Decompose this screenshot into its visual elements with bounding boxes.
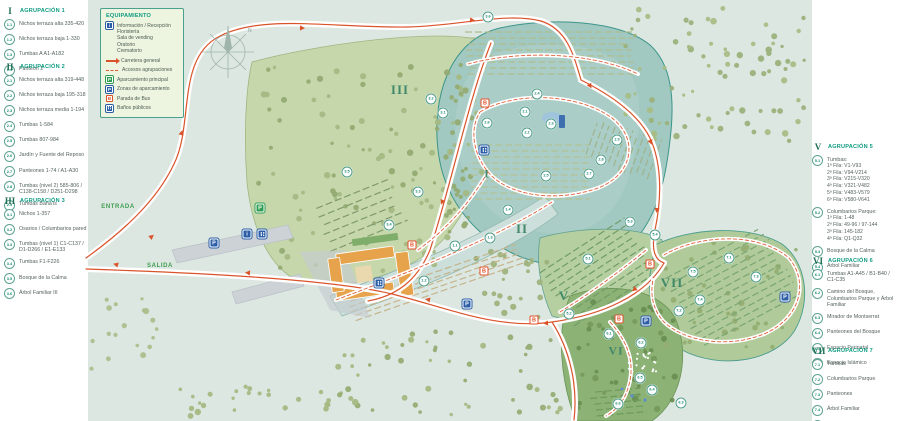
- legend-item-label: Mirador de Montserrat: [827, 313, 879, 321]
- legend-item-label: Panteones 1-74 / A1-A30: [19, 166, 78, 174]
- legend-item-6.4: 6.4Panteones del Bosque: [812, 328, 898, 339]
- map-marker-6.5: 6.5: [635, 373, 646, 384]
- legend-item-code: 2.5: [4, 136, 15, 147]
- section-title: AGRUPACIÓN 1: [20, 8, 65, 14]
- legend-item-code: 3.3: [4, 239, 15, 250]
- legend-item-label: Nichos terraza media 1-194: [19, 105, 84, 113]
- legend-item-3.5: 3.5Bosque de la Calma: [4, 273, 88, 284]
- wc-icon: [375, 279, 384, 288]
- map-marker-7.4: 7.4: [695, 295, 706, 306]
- legend-item-code: 5.2: [812, 207, 823, 218]
- legend-item-label: Nichos 1-357: [19, 209, 50, 217]
- legend-item-code: 5.1: [812, 155, 823, 166]
- legend-section-agrupacion-II: IIAGRUPACIÓN 22.1Nichos terraza alta 319…: [4, 62, 88, 215]
- fountain-icon: [559, 115, 565, 128]
- legend-item-5.2: 5.2Columbarios Parque:1ª Fila: 1-482ª Fi…: [812, 207, 898, 242]
- legend-item-2.3: 2.3Nichos terraza media 1-194: [4, 105, 88, 116]
- legend-item-3.4: 3.4Tumbas F1-F226: [4, 258, 88, 269]
- equipment-item: iInformación / RecepciónFloristeríaSala …: [106, 22, 179, 54]
- equipment-item-label: Información / RecepciónFloristeríaSala d…: [117, 22, 171, 54]
- legend-item-label: Nichos terraza alta 335-420: [19, 19, 84, 27]
- map-marker-2.1: 2.1: [520, 107, 531, 118]
- map-area-numeral-V: V: [559, 288, 569, 304]
- map-marker-1.3: 1.3: [485, 233, 496, 244]
- legend-item-2.1: 2.1Nichos terraza alta 319-448: [4, 75, 88, 86]
- legend-item-code: 3.2: [4, 224, 15, 235]
- equipment-legend: EQUIPAMIENTO iInformación / RecepciónFlo…: [100, 8, 184, 118]
- legend-item-7.4: 7.4Árbol Familiar: [812, 405, 898, 416]
- legend-item-1.3: 1.3Tumbas A A1-A182: [4, 49, 88, 60]
- equipment-item: PAparcamiento principal: [106, 76, 179, 83]
- map-marker-2.4: 2.4: [532, 89, 543, 100]
- wc-icon: [480, 146, 489, 155]
- map-area-numeral-VII: VII: [661, 275, 684, 291]
- legend-item-label: Tumbas:1ª Fila: V1-V932ª Fila: V94-V2143…: [827, 155, 870, 203]
- bus-stop-icon: B: [408, 241, 417, 250]
- legend-item-label: Columbarios Parque: [827, 374, 875, 382]
- equipment-item: Baños públicos: [106, 105, 179, 112]
- wc-icon: [106, 105, 113, 112]
- map-marker-2.6: 2.6: [482, 118, 493, 129]
- legend-item-code: 2.4: [4, 121, 15, 132]
- map-marker-6.4: 6.4: [647, 385, 658, 396]
- legend-item-code: 6.4: [812, 328, 823, 339]
- bus-stop-icon: B: [481, 99, 490, 108]
- legend-item-label: Columbarios Parque:1ª Fila: 1-482ª Fila:…: [827, 207, 877, 242]
- bus-stop-icon: B: [615, 315, 624, 324]
- equipment-legend-title: EQUIPAMIENTO: [106, 13, 179, 19]
- equipment-item-label: Zonas de aparcamiento: [117, 86, 170, 93]
- section-numeral: VI: [812, 256, 824, 266]
- bus-stop-icon: B: [480, 267, 489, 276]
- legend-item-3.1: 3.1Nichos 1-357: [4, 209, 88, 220]
- legend-item-2.5: 2.5Tumbas 807-984: [4, 136, 88, 147]
- legend-item-sublines: 1ª Fila: V1-V932ª Fila: V94-V2143ª Fila:…: [827, 163, 870, 203]
- map-area-numeral-III: III: [391, 82, 409, 98]
- legend-item-label: Bosque de la Calma: [827, 246, 875, 254]
- map-marker-2.2: 2.2: [522, 128, 533, 139]
- legend-item-6.2: 6.2Camino del Bosque, Columbarios Parque…: [812, 288, 898, 309]
- legend-item-code: 2.2: [4, 90, 15, 101]
- equipment-item-label: Baños públicos: [117, 105, 151, 112]
- legend-item-label: Tumbas (nivel 2) 585-806 / C138-C158 / D…: [19, 181, 88, 195]
- legend-item-1.2: 1.2Nichos terraza baja 1-330: [4, 34, 88, 45]
- section-numeral: II: [4, 62, 16, 72]
- legend-item-label: Árbol Familiar III: [19, 288, 58, 296]
- map-marker-5.3: 5.3: [625, 217, 636, 228]
- legend-item-6.3: 6.3Mirador de Montserrat: [812, 313, 898, 324]
- map-marker-7.2: 7.2: [674, 306, 685, 317]
- legend-item-code: 2.3: [4, 105, 15, 116]
- map-marker-2.5: 2.5: [541, 171, 552, 182]
- legend-item-code: 7.3: [812, 389, 823, 400]
- compass-rose-icon: N: [202, 26, 254, 78]
- map-marker-6.2: 6.2: [636, 338, 647, 349]
- section-numeral: VII: [812, 346, 824, 356]
- legend-item-code: 6.3: [812, 313, 823, 324]
- access-road-icon: [106, 70, 118, 71]
- legend-item-label: Tumbas A A1-A182: [19, 49, 64, 57]
- equipment-item-label: Carretera general: [121, 57, 160, 64]
- legend-item-2.2: 2.2Nichos terraza baja 195-318: [4, 90, 88, 101]
- map-marker-3.2: 3.2: [426, 94, 437, 105]
- legend-item-code: 3.5: [4, 273, 15, 284]
- map-marker-6.1: 6.1: [604, 329, 615, 340]
- main-road-icon: [106, 60, 117, 62]
- map-marker-5.4: 5.4: [650, 230, 661, 241]
- section-title: AGRUPACIÓN 6: [828, 258, 873, 264]
- map-marker-3.4: 3.4: [384, 220, 395, 231]
- equipment-item-label: Parada de Bus: [117, 95, 150, 102]
- legend-item-label: Nichos terraza alta 319-448: [19, 75, 84, 83]
- map-marker-3.3: 3.3: [413, 187, 424, 198]
- legend-item-code: 2.6: [4, 151, 15, 162]
- map-marker-6.6: 6.6: [613, 399, 624, 410]
- map-marker-3.6: 3.6: [483, 12, 494, 23]
- legend-item-code: 3.4: [4, 258, 15, 269]
- legend-item-label: Nichos terraza baja 195-318: [19, 90, 86, 98]
- legend-item-label: Panteones del Bosque: [827, 328, 880, 336]
- equipment-item: Accesos agrupaciones: [106, 67, 179, 74]
- map-marker-2.3: 2.3: [546, 119, 557, 130]
- parking-zone-icon: P: [106, 86, 113, 93]
- map-marker-7.3: 7.3: [751, 272, 762, 283]
- map-area-numeral-VI: VI: [608, 344, 623, 359]
- road-label-entrada: ENTRADA: [101, 204, 135, 210]
- legend-item-label: Bosque de la Calma: [19, 273, 67, 281]
- legend-item-code: 1.3: [4, 49, 15, 60]
- legend-item-6.1: 6.1Tumbas A1-A45 / B1-B40 / C1-C35: [812, 269, 898, 283]
- map-marker-1.1: 1.1: [450, 241, 461, 252]
- equipment-item: BParada de Bus: [106, 95, 179, 102]
- legend-item-1.1: 1.1Nichos terraza alta 335-420: [4, 19, 88, 30]
- section-title: AGRUPACIÓN 3: [20, 198, 65, 204]
- bus-stop-icon: B: [106, 95, 113, 102]
- map-marker-6.3: 6.3: [676, 398, 687, 409]
- legend-item-2.4: 2.4Tumbas 1-584: [4, 121, 88, 132]
- legend-item-label: Tumbas 807-984: [19, 136, 59, 144]
- info-icon: i: [243, 230, 252, 239]
- map-marker-7.1: 7.1: [724, 253, 735, 264]
- map-area-numeral-II: II: [516, 221, 528, 237]
- section-title: AGRUPACIÓN 2: [20, 64, 65, 70]
- cemetery-park-map: N EQUIPAMIENTO iInformación / RecepciónF…: [0, 0, 900, 421]
- legend-item-code: 2.8: [4, 181, 15, 192]
- map-marker-5.1: 5.1: [583, 254, 594, 265]
- map-marker-1.2: 1.2: [419, 276, 430, 287]
- parking-main-icon: P: [106, 76, 113, 83]
- legend-item-2.8: 2.8Tumbas (nivel 2) 585-806 / C138-C158 …: [4, 181, 88, 195]
- legend-item-3.3: 3.3Tumbas (nivel 1) C1-C137 / D1-D266 / …: [4, 239, 88, 253]
- equipment-item: Carretera general: [106, 57, 179, 64]
- parking-main-icon: P: [256, 204, 265, 213]
- map-marker-7.5: 7.5: [688, 267, 699, 278]
- legend-item-code: 7.2: [812, 374, 823, 385]
- legend-item-code: 3.6: [4, 288, 15, 299]
- legend-item-code: 2.1: [4, 75, 15, 86]
- legend-item-label: Camino del Bosque, Columbarios Parque y …: [827, 288, 898, 309]
- legend-item-code: 6.2: [812, 288, 823, 299]
- legend-item-label: Tumbas (nivel 1) C1-C137 / D1-D266 / E1-…: [19, 239, 88, 253]
- legend-item-7.3: 7.3Panteones: [812, 389, 898, 400]
- legend-item-sublines: 1ª Fila: 1-482ª Fila: 49-96 / 97-1443ª F…: [827, 215, 877, 242]
- map-marker-3.1: 3.1: [438, 108, 449, 119]
- legend-item-label: Osarios / Columbarios pared: [19, 224, 86, 232]
- legend-item-label: Tumbas 1-584: [19, 121, 53, 129]
- legend-item-label: Tumbas A1-A45 / B1-B40 / C1-C35: [827, 269, 898, 283]
- legend-item-2.6: 2.6Jardín y Fuente del Reposo: [4, 151, 88, 162]
- map-marker-1.4: 1.4: [503, 205, 514, 216]
- legend-item-label: Panteones: [827, 389, 852, 397]
- legend-item-label: Jardín y Fuente del Reposo: [19, 151, 84, 159]
- legend-item-7.2: 7.2Columbarios Parque: [812, 374, 898, 385]
- equipment-item: PZonas de aparcamiento: [106, 86, 179, 93]
- legend-section-agrupacion-III: IIIAGRUPACIÓN 33.1Nichos 1-3573.2Osarios…: [4, 196, 88, 304]
- legend-item-label: Tumbas: [827, 359, 846, 367]
- equipment-item-label: Aparcamiento principal: [117, 76, 168, 83]
- bus-stop-icon: B: [530, 316, 539, 325]
- map-marker-3.5: 3.5: [342, 167, 353, 178]
- info-icon: i: [106, 22, 113, 29]
- parking-zone-icon: P: [781, 293, 790, 302]
- road-label-salida: SALIDA: [147, 263, 173, 269]
- parking-zone-icon: P: [642, 317, 651, 326]
- legend-item-7.1: 7.1Tumbas: [812, 359, 898, 370]
- map-marker-2.9: 2.9: [612, 135, 623, 146]
- section-numeral: V: [812, 142, 824, 152]
- section-title: AGRUPACIÓN 7: [828, 348, 873, 354]
- map-marker-2.8: 2.8: [596, 155, 607, 166]
- legend-item-code: 7.4: [812, 405, 823, 416]
- legend-item-code: 6.1: [812, 269, 823, 280]
- map-marker-2.7: 2.7: [584, 169, 595, 180]
- legend-item-label: Nichos terraza baja 1-330: [19, 34, 80, 42]
- bus-stop-icon: B: [646, 260, 655, 269]
- legend-item-code: 2.7: [4, 166, 15, 177]
- legend-item-3.6: 3.6Árbol Familiar III: [4, 288, 88, 299]
- section-numeral: III: [4, 196, 16, 206]
- legend-item-3.2: 3.2Osarios / Columbarios pared: [4, 224, 88, 235]
- parking-zone-icon: P: [463, 300, 472, 309]
- equipment-item-label: Accesos agrupaciones: [122, 67, 172, 74]
- legend-item-code: 7.1: [812, 359, 823, 370]
- legend-item-2.7: 2.7Panteones 1-74 / A1-A30: [4, 166, 88, 177]
- legend-left: IAGRUPACIÓN 11.1Nichos terraza alta 335-…: [4, 0, 88, 421]
- legend-item-code: 1.2: [4, 34, 15, 45]
- wc-icon: [258, 230, 267, 239]
- parking-zone-icon: P: [210, 239, 219, 248]
- legend-item-label: Tumbas F1-F226: [19, 258, 59, 266]
- zone-agrupacion2-terraces: [437, 22, 672, 266]
- section-numeral: I: [4, 6, 16, 16]
- legend-item-code: 1.1: [4, 19, 15, 30]
- map-marker-5.2: 5.2: [564, 309, 575, 320]
- map-area-numeral-I: I: [484, 167, 490, 182]
- legend-item-code: 3.1: [4, 209, 15, 220]
- section-title: AGRUPACIÓN 5: [828, 144, 873, 150]
- legend-right: VAGRUPACIÓN 55.1Tumbas:1ª Fila: V1-V932ª…: [812, 0, 898, 421]
- legend-item-label: Árbol Familiar: [827, 405, 860, 413]
- legend-section-agrupacion-VII: VIIAGRUPACIÓN 77.1Tumbas7.2Columbarios P…: [812, 346, 898, 421]
- svg-text:N: N: [248, 28, 252, 34]
- legend-item-5.1: 5.1Tumbas:1ª Fila: V1-V932ª Fila: V94-V2…: [812, 155, 898, 203]
